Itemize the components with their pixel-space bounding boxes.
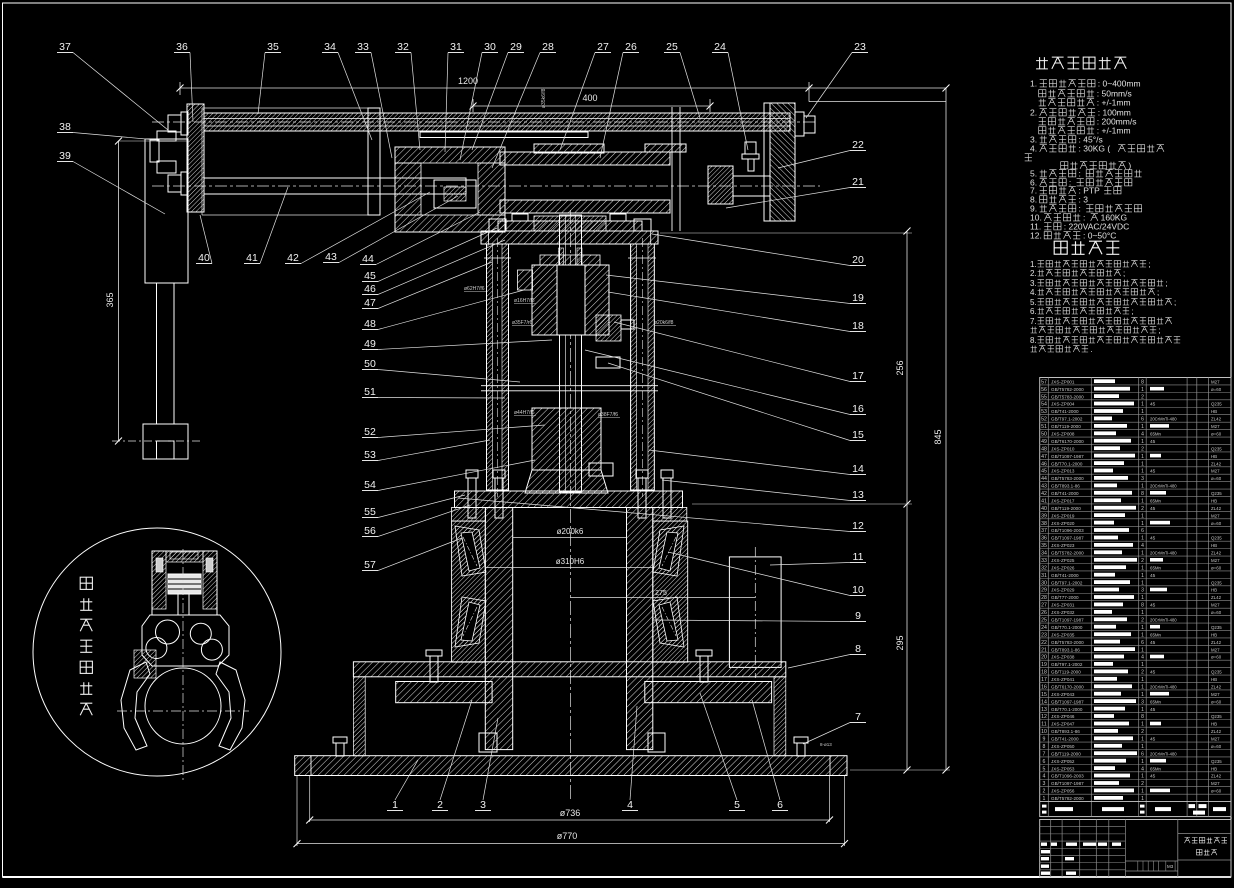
svg-text:43: 43 [1041,484,1047,490]
svg-text:56: 56 [1041,387,1047,393]
svg-text:49: 49 [1041,439,1047,445]
svg-text:1: 1 [1141,551,1144,557]
svg-text:ø16H7/f6: ø16H7/f6 [514,298,535,304]
svg-text:;: ; [1174,298,1176,307]
svg-text:JXS-ZP043: JXS-ZP043 [1051,692,1075,697]
svg-text:ZL42: ZL42 [1211,595,1222,600]
svg-text:45: 45 [1150,469,1156,475]
svg-text:;: ; [1159,326,1161,335]
svg-text:3.: 3. [1030,279,1037,288]
svg-text:6: 6 [1141,528,1144,534]
svg-text:Q235: Q235 [1211,580,1222,585]
svg-text:30: 30 [484,41,496,53]
svg-text:13: 13 [1041,707,1047,713]
svg-text:GB/T119-2000: GB/T119-2000 [1051,751,1081,756]
svg-text:25: 25 [1041,618,1047,624]
svg-text:21: 21 [852,176,864,188]
svg-text:1: 1 [1141,513,1144,519]
svg-text:ZL42: ZL42 [1211,729,1222,734]
svg-text:JXS-ZP053: JXS-ZP053 [1051,766,1075,771]
svg-text:10: 10 [852,584,864,596]
svg-text:20CrMnTi-480: 20CrMnTi-480 [1150,618,1177,623]
svg-text:GB/T6170-2000: GB/T6170-2000 [1051,439,1084,444]
svg-text:45: 45 [1150,707,1156,713]
svg-text:M27: M27 [1211,737,1220,742]
svg-text:9: 9 [855,610,861,622]
svg-text:HB: HB [1211,543,1217,548]
svg-text:GB/T893.1-86: GB/T893.1-86 [1051,647,1080,652]
svg-text:JXS-ZP032: JXS-ZP032 [1051,610,1075,615]
svg-text:Q235: Q235 [1211,402,1222,407]
svg-text:4: 4 [627,799,633,811]
svg-text:GB/T5783-2000: GB/T5783-2000 [1051,476,1084,481]
svg-text:GB/T5782-2000: GB/T5782-2000 [1051,387,1084,392]
svg-text:GB/T97.1-2002: GB/T97.1-2002 [1051,580,1083,585]
svg-text:21: 21 [1041,647,1047,653]
svg-text:ø736: ø736 [560,808,581,818]
svg-text:45: 45 [1041,469,1047,475]
svg-text:1: 1 [392,799,398,811]
svg-text:26: 26 [1041,610,1047,616]
svg-text:GB/T70.1-2000: GB/T70.1-2000 [1051,461,1083,466]
svg-text:1: 1 [1141,625,1144,631]
svg-text:65Mn: 65Mn [1150,632,1162,637]
svg-text:8: 8 [1141,603,1144,609]
svg-text:6.: 6. [1030,307,1037,316]
svg-text:1: 1 [1141,632,1144,638]
svg-text:34: 34 [1041,551,1047,557]
svg-text:20CrMnTi-480: 20CrMnTi-480 [1150,417,1177,422]
svg-text:6: 6 [1043,759,1046,765]
svg-text:Q235: Q235 [1211,536,1222,541]
svg-text:ø44H7/f6: ø44H7/f6 [514,410,535,416]
svg-text:JXS-ZP004: JXS-ZP004 [1051,402,1075,407]
svg-text:45: 45 [1150,774,1156,780]
svg-text:1: 1 [1141,707,1144,713]
svg-text:GB/T41-2000: GB/T41-2000 [1051,491,1079,496]
svg-text:HB: HB [1211,766,1217,771]
svg-text:1: 1 [1141,536,1144,542]
svg-text:37: 37 [59,41,71,53]
svg-text:1: 1 [1141,610,1144,616]
svg-text::: : [1069,178,1071,188]
svg-text:Q235: Q235 [1211,446,1222,451]
svg-text:50: 50 [1041,432,1047,438]
svg-text:JXS-ZP017: JXS-ZP017 [1051,498,1075,503]
svg-text:ø=60: ø=60 [1211,744,1222,749]
svg-text:12.: 12. [1030,231,1042,241]
svg-text:GB/T119-2000: GB/T119-2000 [1051,670,1081,675]
svg-text:GB/T70.1-2000: GB/T70.1-2000 [1051,707,1083,712]
svg-text:2: 2 [1141,446,1144,452]
svg-text:23: 23 [1041,632,1047,638]
svg-text:28: 28 [1041,595,1047,601]
svg-text:6: 6 [1141,751,1144,757]
svg-text:45: 45 [1150,506,1156,512]
svg-text:M3: M3 [1167,864,1174,869]
svg-text:1: 1 [1141,573,1144,579]
svg-text:47: 47 [1041,454,1047,460]
svg-text:JXS-ZP031: JXS-ZP031 [1051,603,1075,608]
svg-text:;: ; [1123,269,1125,278]
svg-text:ø20k6/f8: ø20k6/f8 [654,320,674,326]
svg-text:6: 6 [1141,640,1144,646]
svg-text:7: 7 [1043,751,1046,757]
svg-text:50: 50 [364,358,376,370]
svg-text:8: 8 [1141,491,1144,497]
svg-text:46: 46 [1041,461,1047,467]
svg-text:: 0~400mm: : 0~400mm [1098,79,1141,89]
svg-text:HB: HB [1211,588,1217,593]
svg-text:54: 54 [1041,402,1047,408]
svg-text:M27: M27 [1211,692,1220,697]
svg-text:ZL42: ZL42 [1211,551,1222,556]
svg-text:32: 32 [1041,565,1047,571]
svg-text:1: 1 [1141,580,1144,586]
svg-text:1: 1 [1141,744,1144,750]
svg-text:GB/T41-2000: GB/T41-2000 [1051,573,1079,578]
svg-text:1: 1 [1141,647,1144,653]
svg-text:20CrMnTi-480: 20CrMnTi-480 [1150,551,1177,556]
svg-text:ZL42: ZL42 [1211,461,1222,466]
svg-text:1.: 1. [1030,79,1037,89]
svg-text:6: 6 [777,799,783,811]
svg-text:5: 5 [1043,766,1046,772]
svg-text:51: 51 [364,386,376,398]
svg-text:GB/T1096-2003: GB/T1096-2003 [1051,774,1084,779]
svg-text:5: 5 [734,799,740,811]
svg-text:GB/T1097-1987: GB/T1097-1987 [1051,781,1084,786]
svg-text:56: 56 [364,525,376,537]
svg-text::: : [1079,204,1081,214]
svg-text:23: 23 [854,41,866,53]
svg-text:GB/T1097-1987: GB/T1097-1987 [1051,454,1084,459]
svg-text:45: 45 [1150,737,1156,743]
svg-text:55: 55 [1041,394,1047,400]
svg-text:47: 47 [364,297,376,309]
svg-text:11: 11 [853,551,864,563]
svg-text:;: ; [1149,260,1151,269]
svg-text:1: 1 [1141,409,1144,415]
svg-text:GB/T5783-2000: GB/T5783-2000 [1051,394,1084,399]
svg-text:4: 4 [1141,543,1144,549]
svg-text:26: 26 [625,41,637,53]
svg-text:31: 31 [450,41,462,53]
svg-text:8-ø13: 8-ø13 [820,742,832,747]
svg-text:33: 33 [1041,558,1047,564]
svg-text:28: 28 [542,41,554,53]
svg-text:: +/-1mm: : +/-1mm [1097,98,1131,108]
svg-text:1: 1 [1141,722,1144,728]
svg-text:ZL42: ZL42 [1211,417,1222,422]
svg-text:19: 19 [1041,662,1047,668]
svg-text:HB: HB [1211,454,1217,459]
svg-text:3: 3 [1141,476,1144,482]
svg-text:2: 2 [1141,781,1144,787]
svg-text:2: 2 [437,799,443,811]
svg-text:1: 1 [1141,469,1144,475]
svg-text:GB/T1096-2003: GB/T1096-2003 [1051,528,1084,533]
svg-text:29: 29 [510,41,522,53]
svg-text:42: 42 [1041,491,1047,497]
svg-text:4: 4 [1043,774,1046,780]
svg-text:2: 2 [1141,558,1144,564]
svg-text:27: 27 [597,41,609,53]
svg-text:1: 1 [1141,484,1144,490]
svg-text:8: 8 [1141,379,1144,385]
svg-text:30: 30 [1041,580,1047,586]
svg-text:11: 11 [1041,722,1046,728]
svg-text:JXS-ZP035: JXS-ZP035 [1051,632,1075,637]
svg-text:1: 1 [1141,677,1144,683]
svg-text:8: 8 [855,643,861,655]
svg-text:): ) [1128,161,1131,171]
svg-text:1: 1 [1141,774,1144,780]
svg-text:48: 48 [364,318,376,330]
svg-text:ø62H7/f6: ø62H7/f6 [464,286,485,292]
svg-text:24: 24 [714,41,726,53]
svg-text:41: 41 [1041,498,1047,504]
svg-text:17: 17 [852,370,864,382]
svg-text:HB: HB [1211,677,1217,682]
svg-text:45: 45 [1150,670,1156,676]
svg-text:65Mn: 65Mn [1150,498,1162,503]
svg-text:35: 35 [1041,543,1047,549]
svg-text:Q235: Q235 [1211,714,1222,719]
svg-text:295: 295 [895,635,905,650]
svg-text:43: 43 [325,251,337,263]
svg-text:1: 1 [1141,521,1144,527]
svg-text:JXS-ZP001: JXS-ZP001 [1051,379,1075,384]
svg-text:3: 3 [1043,781,1046,787]
svg-text:400: 400 [582,93,597,103]
svg-text:4: 4 [1141,655,1144,661]
svg-text:65Mn: 65Mn [1150,565,1162,570]
svg-text:GB/T893.1-86: GB/T893.1-86 [1051,484,1080,489]
svg-text:1: 1 [1141,565,1144,571]
svg-text:27: 27 [1041,603,1047,609]
svg-text:GB/T1097-1987: GB/T1097-1987 [1051,618,1084,623]
svg-text:22: 22 [1041,640,1047,646]
svg-text:1: 1 [1141,461,1144,467]
svg-text:ø=60: ø=60 [1211,610,1222,615]
svg-text:ø=60: ø=60 [1211,699,1222,704]
svg-text:256: 256 [895,360,905,375]
svg-text:M27: M27 [1211,558,1220,563]
svg-text:25: 25 [666,41,678,53]
svg-text:45: 45 [1150,573,1156,579]
svg-text:36: 36 [176,41,188,53]
svg-text:Q235: Q235 [1211,759,1222,764]
svg-text:29: 29 [1041,588,1047,594]
svg-text:57: 57 [364,559,376,571]
svg-text:ZL42: ZL42 [1211,684,1222,689]
svg-text:ø770: ø770 [557,831,578,841]
svg-text:JXS-ZP056: JXS-ZP056 [1051,789,1075,794]
svg-text:1200: 1200 [458,76,478,86]
svg-text:14: 14 [852,463,864,475]
svg-text:1: 1 [1141,424,1144,430]
svg-text:GB/T893.1-86: GB/T893.1-86 [1051,729,1080,734]
svg-text:JXS-ZP029: JXS-ZP029 [1051,588,1075,593]
svg-text:M27: M27 [1211,424,1220,429]
svg-text:54: 54 [364,479,376,491]
svg-text:ZL42: ZL42 [1211,774,1222,779]
svg-text:36: 36 [1041,536,1047,542]
svg-text:ø=60: ø=60 [1211,432,1222,437]
svg-text:JXS-ZP038: JXS-ZP038 [1051,655,1075,660]
svg-text:GB/T5782-2000: GB/T5782-2000 [1051,551,1084,556]
svg-text:GB/T119-2000: GB/T119-2000 [1051,506,1081,511]
svg-text:GB/T5783-2000: GB/T5783-2000 [1051,640,1084,645]
svg-text:46: 46 [364,283,376,295]
svg-text:19: 19 [852,292,864,304]
svg-text:M27: M27 [1211,469,1220,474]
svg-text:45: 45 [364,270,376,282]
svg-text:7.: 7. [1030,317,1037,326]
svg-text:1: 1 [1141,439,1144,445]
svg-text:3: 3 [1141,699,1144,705]
svg-text:14: 14 [1041,699,1047,705]
svg-text:;: ; [1157,288,1159,297]
svg-text:4.: 4. [1030,288,1037,297]
svg-text:JXS-ZP047: JXS-ZP047 [1051,722,1075,727]
svg-text:2: 2 [1043,789,1046,795]
svg-text:48: 48 [1041,446,1047,452]
svg-text:51: 51 [1041,424,1047,430]
svg-text:M27: M27 [1211,647,1220,652]
svg-text:2.: 2. [1030,108,1037,118]
svg-text:GB/T70.1-2000: GB/T70.1-2000 [1051,625,1083,630]
svg-text:GB/T119-2000: GB/T119-2000 [1051,424,1081,429]
svg-text:ø200k6: ø200k6 [557,527,584,536]
svg-text:JXS-ZP041: JXS-ZP041 [1051,677,1075,682]
svg-text:2: 2 [1141,670,1144,676]
svg-text:4.: 4. [1030,144,1037,154]
svg-text:55: 55 [364,506,376,518]
svg-text:JXS-ZP023: JXS-ZP023 [1051,543,1075,548]
svg-text:365: 365 [105,292,115,307]
svg-text:45: 45 [1150,603,1156,609]
svg-text:20: 20 [1041,655,1047,661]
svg-text:ZL42: ZL42 [1211,640,1222,645]
svg-text:: 0~50°C: : 0~50°C [1083,231,1116,241]
svg-text:ø=60: ø=60 [1211,565,1222,570]
svg-text:65Mn: 65Mn [1150,432,1162,437]
svg-text:22: 22 [852,139,864,151]
svg-text:GB/T97.1-2002: GB/T97.1-2002 [1051,662,1083,667]
svg-text:2: 2 [1141,618,1144,624]
svg-text:53: 53 [1041,409,1047,415]
svg-text:13: 13 [852,489,864,501]
svg-text:2.: 2. [1030,269,1037,278]
svg-text:2: 2 [1141,394,1144,400]
svg-text:45: 45 [1150,439,1156,445]
svg-text:34: 34 [324,41,336,53]
svg-text:15: 15 [1041,692,1047,698]
svg-text:M27: M27 [1211,513,1220,518]
svg-text:44: 44 [362,253,374,265]
svg-text:33: 33 [357,41,369,53]
svg-text:65Mn: 65Mn [1150,699,1162,704]
svg-text:ø35k6/f8: ø35k6/f8 [541,88,547,108]
svg-text:32: 32 [397,41,409,53]
svg-text:3: 3 [1141,588,1144,594]
svg-text:18: 18 [1041,670,1047,676]
svg-text:1: 1 [1141,402,1144,408]
svg-text:HB: HB [1211,632,1217,637]
svg-text::: : [1079,169,1081,179]
svg-text:1: 1 [1141,759,1144,765]
svg-text:8: 8 [1043,744,1046,750]
svg-text:53: 53 [364,449,376,461]
svg-text:845: 845 [933,429,943,444]
svg-text:49: 49 [364,338,376,350]
svg-text:57: 57 [1041,379,1047,385]
svg-text:ZL42: ZL42 [1211,506,1222,511]
svg-text:GB/T6170-2000: GB/T6170-2000 [1051,684,1084,689]
svg-text:4: 4 [1141,432,1144,438]
svg-text:37: 37 [1041,528,1047,534]
svg-text:4: 4 [1141,766,1144,772]
svg-text:44: 44 [1041,476,1047,482]
svg-text:;: ; [1132,307,1134,316]
svg-text:41: 41 [246,252,258,264]
svg-text:2: 2 [1141,506,1144,512]
svg-text:45: 45 [1150,536,1156,542]
svg-text:: 30KG (: : 30KG ( [1079,144,1111,154]
svg-text:GB/T41-2000: GB/T41-2000 [1051,409,1079,414]
svg-text:JXS-ZP013: JXS-ZP013 [1051,469,1075,474]
svg-text:JXS-ZP019: JXS-ZP019 [1051,513,1075,518]
svg-text:31: 31 [1041,573,1047,579]
svg-text:ø=60: ø=60 [1211,521,1222,526]
svg-text:39: 39 [59,150,71,162]
svg-text:15: 15 [852,429,864,441]
svg-text:20CrMnTi-480: 20CrMnTi-480 [1150,751,1177,756]
svg-text:9: 9 [1043,737,1046,743]
svg-text:7: 7 [855,711,861,723]
svg-text:45: 45 [1150,402,1156,408]
svg-text:GB/T5782-2000: GB/T5782-2000 [1051,796,1084,801]
svg-text:1: 1 [1141,692,1144,698]
svg-text:GB/T1097-1987: GB/T1097-1987 [1051,699,1084,704]
svg-text:Q235: Q235 [1211,625,1222,630]
svg-text:20CrMnTi-480: 20CrMnTi-480 [1150,684,1177,689]
svg-text:2: 2 [1141,729,1144,735]
svg-text:HB: HB [1211,498,1217,503]
svg-text:39: 39 [1041,513,1047,519]
svg-text:.: . [1091,345,1093,354]
svg-text:6: 6 [1141,417,1144,423]
svg-text:GB/T41-2000: GB/T41-2000 [1051,737,1079,742]
svg-text:16: 16 [852,403,864,415]
svg-text:GB/T1097-1987: GB/T1097-1987 [1051,536,1084,541]
svg-text:JXS-ZP025: JXS-ZP025 [1051,558,1075,563]
svg-text:52: 52 [364,426,376,438]
svg-text:HB: HB [1211,722,1217,727]
svg-text:12: 12 [852,520,864,532]
svg-text:M27: M27 [1211,379,1220,384]
svg-text:M27: M27 [1211,603,1220,608]
svg-text:1: 1 [1141,595,1144,601]
svg-text:ø=60: ø=60 [1211,655,1222,660]
svg-text:;: ; [1166,279,1168,288]
svg-text:1: 1 [1141,662,1144,668]
svg-text:40: 40 [1041,506,1047,512]
svg-text:M27: M27 [1211,781,1220,786]
svg-text:3: 3 [480,799,486,811]
